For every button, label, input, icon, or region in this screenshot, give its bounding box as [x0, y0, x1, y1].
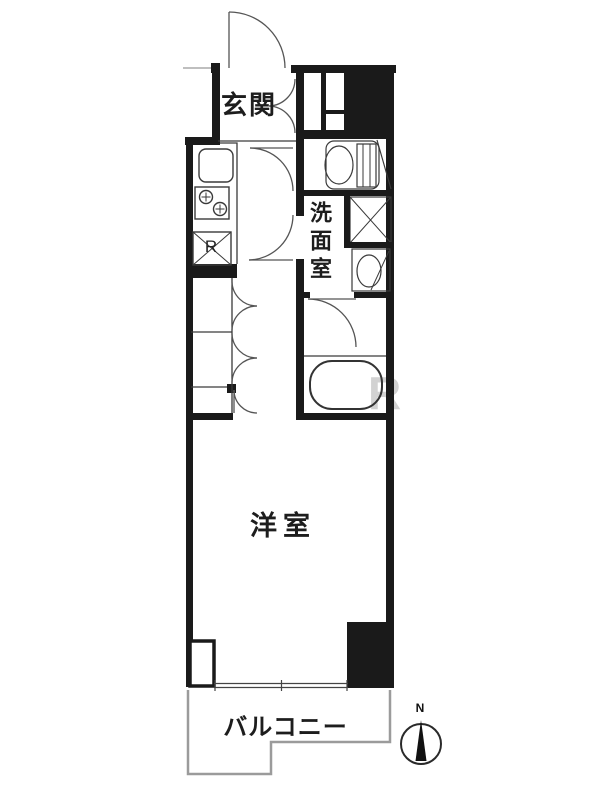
refrigerator-label: R: [201, 237, 223, 257]
washroom-door-arc: [249, 215, 293, 260]
room-label-balcony: バルコニー: [203, 707, 368, 742]
wall-washing-machine-bottom: [344, 242, 392, 248]
kitchen-sink: [199, 149, 233, 182]
wall-kitchen-closet-band: [186, 264, 237, 278]
washbasin-bowl: [357, 255, 381, 287]
hall-door-arc: [250, 148, 293, 191]
bathroom-door-arc: [308, 299, 356, 347]
wall-room-top-left: [186, 413, 233, 420]
room-label-entrance: 玄関: [214, 85, 284, 122]
wall-bath-divider-right: [354, 292, 392, 298]
wall-toilet-bottom: [296, 190, 386, 196]
closet-folding-door-arc: [232, 358, 257, 382]
compass-north-label: N: [410, 701, 432, 715]
closet-folding-door-arc: [232, 334, 257, 358]
floorplan-canvas: R: [0, 0, 600, 800]
closet-folding-door-arc: [232, 282, 257, 306]
stove-burner-2-cross: [216, 205, 225, 214]
wall-bath-left: [296, 292, 304, 420]
pillar-black-bottom-right: [347, 622, 392, 688]
wall-left: [186, 137, 193, 687]
compass-needle-icon: [416, 720, 427, 761]
wall-below-shaft: [296, 130, 394, 139]
closet-folding-door-arc: [232, 306, 257, 330]
balcony-window: [214, 680, 348, 691]
entrance-door-arc: [229, 12, 285, 68]
wall-washing-machine-left: [344, 195, 350, 248]
wall-compartment-divider: [321, 68, 326, 132]
washroom-fixtures: [344, 195, 392, 291]
room-door-arc: [234, 390, 257, 413]
toilet-bowl: [325, 146, 353, 184]
room-label-western-room: 洋室: [230, 504, 336, 543]
bathtub: [310, 361, 382, 409]
wall-room-top-right: [296, 413, 394, 420]
compass: [401, 720, 441, 764]
stove-burner-1-cross: [202, 193, 211, 202]
washing-machine-pan-x: [350, 197, 391, 243]
toilet-tank-lines: [363, 144, 370, 187]
wall-right: [386, 69, 394, 688]
pillar-outline-bottom-left: [190, 641, 214, 686]
compartment-split-line: [326, 110, 344, 114]
walls: [185, 63, 396, 688]
toilet-room: [325, 140, 391, 189]
room-label-washroom: 洗面室: [303, 201, 335, 296]
floorplan-drawing: [0, 0, 600, 800]
toilet-tank: [357, 144, 376, 187]
